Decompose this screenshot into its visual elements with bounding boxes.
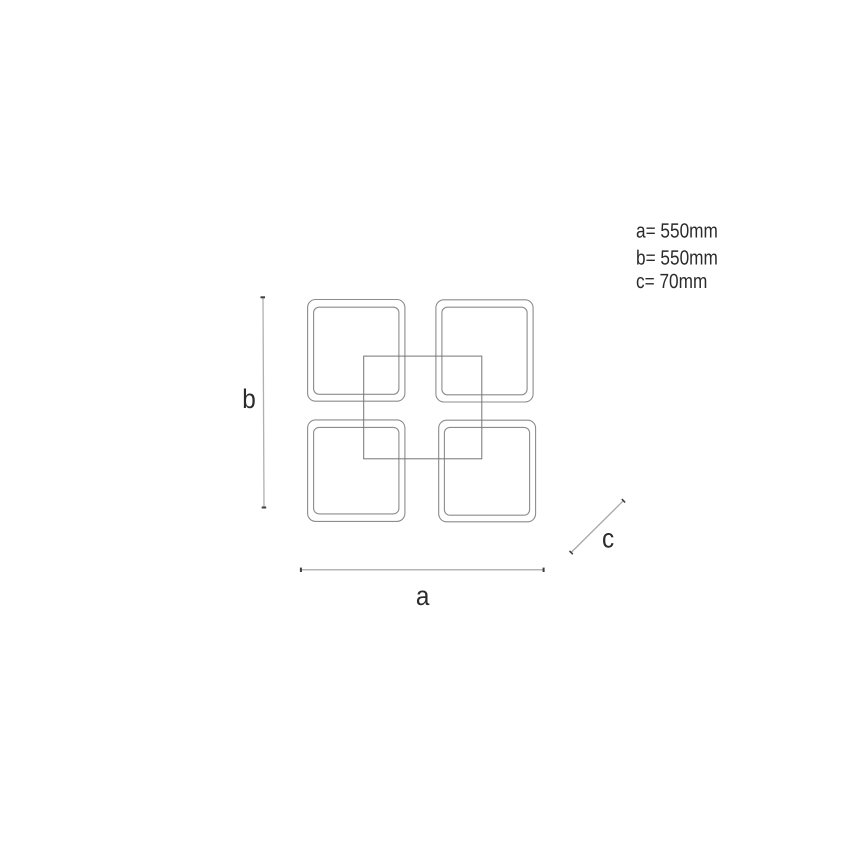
svg-text:b= 550mm: b= 550mm bbox=[636, 246, 718, 269]
svg-text:c= 70mm: c= 70mm bbox=[636, 270, 707, 293]
svg-text:a: a bbox=[416, 581, 430, 611]
svg-text:b: b bbox=[242, 384, 256, 414]
svg-text:a= 550mm: a= 550mm bbox=[636, 220, 718, 243]
svg-text:c: c bbox=[602, 524, 614, 554]
